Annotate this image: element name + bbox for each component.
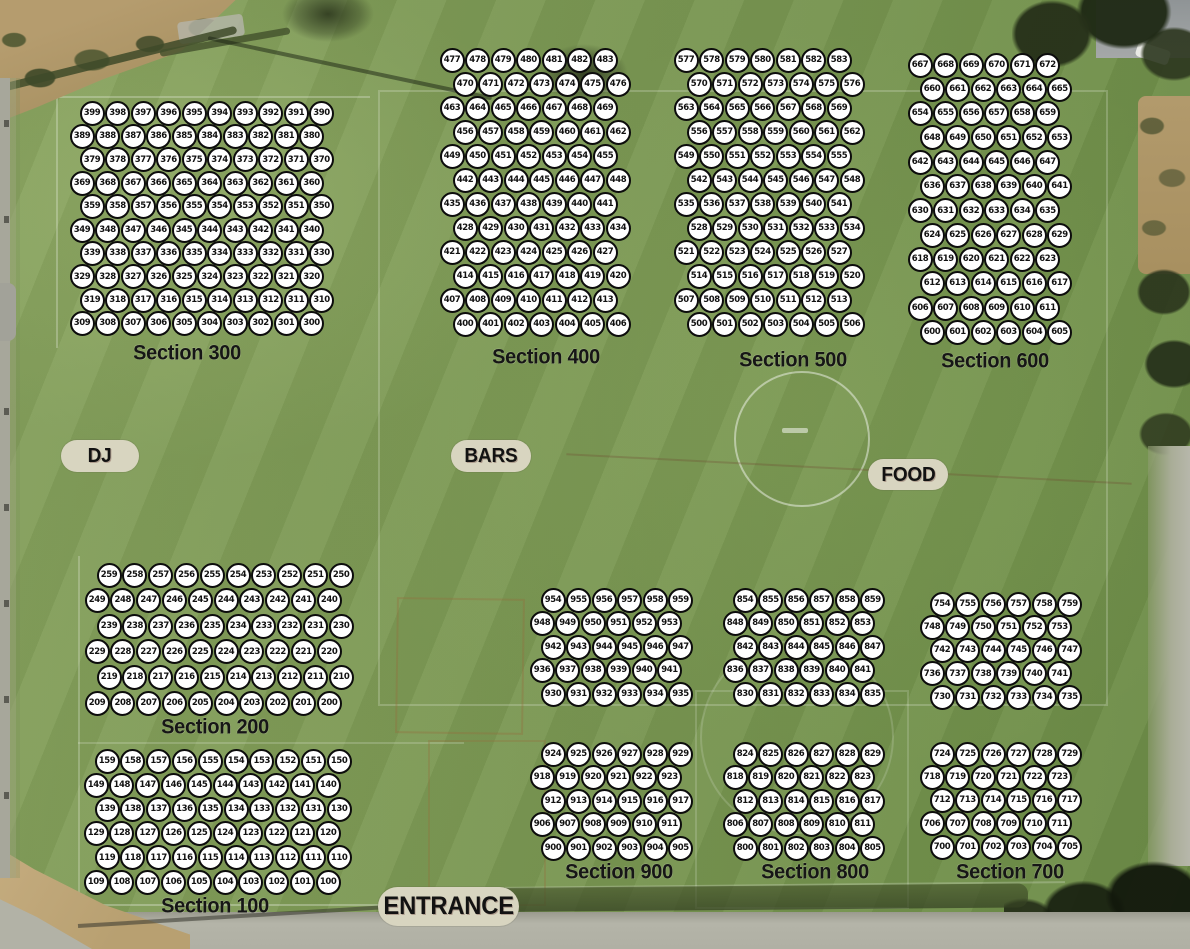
- seat-453[interactable]: 453: [542, 144, 567, 169]
- seat-922[interactable]: 922: [632, 765, 657, 790]
- seat-433[interactable]: 433: [580, 216, 605, 241]
- seat-671[interactable]: 671: [1010, 53, 1035, 78]
- seat-477[interactable]: 477: [440, 48, 465, 73]
- seat-611[interactable]: 611: [1035, 296, 1060, 321]
- seat-140[interactable]: 140: [316, 773, 341, 798]
- seat-481[interactable]: 481: [542, 48, 567, 73]
- seat-435[interactable]: 435: [440, 192, 465, 217]
- seat-529[interactable]: 529: [712, 216, 737, 241]
- seat-523[interactable]: 523: [725, 240, 750, 265]
- seat-541[interactable]: 541: [827, 192, 852, 217]
- seat-942[interactable]: 942: [541, 635, 566, 660]
- seat-480[interactable]: 480: [516, 48, 541, 73]
- seat-804[interactable]: 804: [835, 836, 860, 861]
- seat-734[interactable]: 734: [1032, 685, 1057, 710]
- seat-829[interactable]: 829: [860, 742, 885, 767]
- seat-905[interactable]: 905: [668, 836, 693, 861]
- seat-564[interactable]: 564: [699, 96, 724, 121]
- seat-252[interactable]: 252: [277, 563, 302, 588]
- seat-712[interactable]: 712: [930, 788, 955, 813]
- seat-527[interactable]: 527: [827, 240, 852, 265]
- seat-950[interactable]: 950: [581, 611, 606, 636]
- seat-415[interactable]: 415: [478, 264, 503, 289]
- seat-901[interactable]: 901: [566, 836, 591, 861]
- seat-550[interactable]: 550: [699, 144, 724, 169]
- seat-751[interactable]: 751: [996, 615, 1021, 640]
- seat-933[interactable]: 933: [617, 682, 642, 707]
- seat-904[interactable]: 904: [643, 836, 668, 861]
- seat-841[interactable]: 841: [850, 658, 875, 683]
- seat-516[interactable]: 516: [738, 264, 763, 289]
- seat-612[interactable]: 612: [920, 271, 945, 296]
- seat-620[interactable]: 620: [959, 247, 984, 272]
- seat-724[interactable]: 724: [930, 742, 955, 767]
- seat-819[interactable]: 819: [748, 765, 773, 790]
- seat-432[interactable]: 432: [555, 216, 580, 241]
- seat-420[interactable]: 420: [606, 264, 631, 289]
- seat-417[interactable]: 417: [529, 264, 554, 289]
- seat-514[interactable]: 514: [687, 264, 712, 289]
- seat-907[interactable]: 907: [555, 812, 580, 837]
- seat-859[interactable]: 859: [860, 588, 885, 613]
- seat-831[interactable]: 831: [758, 682, 783, 707]
- seat-395[interactable]: 395: [182, 101, 207, 126]
- seat-627[interactable]: 627: [996, 223, 1021, 248]
- seat-315[interactable]: 315: [182, 288, 207, 313]
- seat-471[interactable]: 471: [478, 72, 503, 97]
- seat-505[interactable]: 505: [814, 312, 839, 337]
- seat-467[interactable]: 467: [542, 96, 567, 121]
- seat-381[interactable]: 381: [274, 124, 299, 149]
- seat-124[interactable]: 124: [213, 821, 238, 846]
- seat-656[interactable]: 656: [959, 101, 984, 126]
- seat-746[interactable]: 746: [1032, 638, 1057, 663]
- seat-349[interactable]: 349: [70, 218, 95, 243]
- seat-566[interactable]: 566: [750, 96, 775, 121]
- seat-353[interactable]: 353: [233, 194, 258, 219]
- seat-404[interactable]: 404: [555, 312, 580, 337]
- seat-713[interactable]: 713: [955, 788, 980, 813]
- seat-307[interactable]: 307: [121, 311, 146, 336]
- seat-614[interactable]: 614: [971, 271, 996, 296]
- seat-537[interactable]: 537: [725, 192, 750, 217]
- seat-375[interactable]: 375: [182, 147, 207, 172]
- seat-706[interactable]: 706: [920, 811, 945, 836]
- seat-941[interactable]: 941: [657, 658, 682, 683]
- seat-528[interactable]: 528: [687, 216, 712, 241]
- seat-849[interactable]: 849: [748, 611, 773, 636]
- seat-250[interactable]: 250: [329, 563, 354, 588]
- seat-551[interactable]: 551: [725, 144, 750, 169]
- seat-319[interactable]: 319: [80, 288, 105, 313]
- seat-465[interactable]: 465: [491, 96, 516, 121]
- seat-630[interactable]: 630: [908, 198, 933, 223]
- seat-224[interactable]: 224: [214, 639, 239, 664]
- seat-509[interactable]: 509: [725, 288, 750, 313]
- seat-239[interactable]: 239: [97, 614, 122, 639]
- seat-431[interactable]: 431: [529, 216, 554, 241]
- seat-390[interactable]: 390: [309, 101, 334, 126]
- seat-308[interactable]: 308: [95, 311, 120, 336]
- seat-570[interactable]: 570: [687, 72, 712, 97]
- seat-830[interactable]: 830: [733, 682, 758, 707]
- seat-333[interactable]: 333: [233, 241, 258, 266]
- seat-153[interactable]: 153: [249, 749, 274, 774]
- seat-368[interactable]: 368: [95, 171, 120, 196]
- seat-542[interactable]: 542: [687, 168, 712, 193]
- seat-909[interactable]: 909: [606, 812, 631, 837]
- seat-421[interactable]: 421: [440, 240, 465, 265]
- seat-702[interactable]: 702: [981, 835, 1006, 860]
- seat-344[interactable]: 344: [197, 218, 222, 243]
- seat-441[interactable]: 441: [593, 192, 618, 217]
- seat-913[interactable]: 913: [566, 789, 591, 814]
- seat-383[interactable]: 383: [223, 124, 248, 149]
- seat-552[interactable]: 552: [750, 144, 775, 169]
- seat-948[interactable]: 948: [530, 611, 555, 636]
- seat-847[interactable]: 847: [860, 635, 885, 660]
- seat-920[interactable]: 920: [581, 765, 606, 790]
- seat-233[interactable]: 233: [251, 614, 276, 639]
- seat-958[interactable]: 958: [643, 588, 668, 613]
- seat-504[interactable]: 504: [789, 312, 814, 337]
- seat-139[interactable]: 139: [95, 797, 120, 822]
- seat-410[interactable]: 410: [516, 288, 541, 313]
- seat-357[interactable]: 357: [131, 194, 156, 219]
- seat-908[interactable]: 908: [581, 812, 606, 837]
- seat-201[interactable]: 201: [291, 691, 316, 716]
- seat-207[interactable]: 207: [136, 691, 161, 716]
- seat-582[interactable]: 582: [801, 48, 826, 73]
- seat-735[interactable]: 735: [1057, 685, 1082, 710]
- seat-389[interactable]: 389: [70, 124, 95, 149]
- seat-513[interactable]: 513: [827, 288, 852, 313]
- seat-641[interactable]: 641: [1047, 174, 1072, 199]
- seat-952[interactable]: 952: [632, 611, 657, 636]
- seat-251[interactable]: 251: [303, 563, 328, 588]
- seat-257[interactable]: 257: [148, 563, 173, 588]
- seat-474[interactable]: 474: [555, 72, 580, 97]
- seat-475[interactable]: 475: [580, 72, 605, 97]
- seat-426[interactable]: 426: [567, 240, 592, 265]
- seat-512[interactable]: 512: [801, 288, 826, 313]
- seat-927[interactable]: 927: [617, 742, 642, 767]
- seat-743[interactable]: 743: [955, 638, 980, 663]
- seat-159[interactable]: 159: [95, 749, 120, 774]
- seat-456[interactable]: 456: [453, 120, 478, 145]
- seat-647[interactable]: 647: [1035, 150, 1060, 175]
- seat-916[interactable]: 916: [643, 789, 668, 814]
- seat-331[interactable]: 331: [284, 241, 309, 266]
- seat-400[interactable]: 400: [453, 312, 478, 337]
- seat-732[interactable]: 732: [981, 685, 1006, 710]
- seat-807[interactable]: 807: [748, 812, 773, 837]
- seat-547[interactable]: 547: [814, 168, 839, 193]
- seat-462[interactable]: 462: [606, 120, 631, 145]
- seat-206[interactable]: 206: [162, 691, 187, 716]
- seat-946[interactable]: 946: [643, 635, 668, 660]
- seat-110[interactable]: 110: [327, 845, 352, 870]
- seat-548[interactable]: 548: [840, 168, 865, 193]
- seat-956[interactable]: 956: [592, 588, 617, 613]
- seat-253[interactable]: 253: [251, 563, 276, 588]
- seat-934[interactable]: 934: [643, 682, 668, 707]
- seat-125[interactable]: 125: [187, 821, 212, 846]
- seat-466[interactable]: 466: [516, 96, 541, 121]
- seat-371[interactable]: 371: [284, 147, 309, 172]
- seat-575[interactable]: 575: [814, 72, 839, 97]
- seat-852[interactable]: 852: [825, 611, 850, 636]
- seat-704[interactable]: 704: [1032, 835, 1057, 860]
- seat-809[interactable]: 809: [799, 812, 824, 837]
- seat-725[interactable]: 725: [955, 742, 980, 767]
- seat-531[interactable]: 531: [763, 216, 788, 241]
- seat-145[interactable]: 145: [187, 773, 212, 798]
- seat-447[interactable]: 447: [580, 168, 605, 193]
- seat-216[interactable]: 216: [174, 665, 199, 690]
- seat-256[interactable]: 256: [174, 563, 199, 588]
- seat-229[interactable]: 229: [85, 639, 110, 664]
- seat-754[interactable]: 754: [930, 592, 955, 617]
- seat-468[interactable]: 468: [567, 96, 592, 121]
- seat-245[interactable]: 245: [188, 588, 213, 613]
- seat-559[interactable]: 559: [763, 120, 788, 145]
- seat-525[interactable]: 525: [776, 240, 801, 265]
- seat-230[interactable]: 230: [329, 614, 354, 639]
- seat-640[interactable]: 640: [1022, 174, 1047, 199]
- seat-142[interactable]: 142: [264, 773, 289, 798]
- seat-726[interactable]: 726: [981, 742, 1006, 767]
- seat-313[interactable]: 313: [233, 288, 258, 313]
- seat-603[interactable]: 603: [996, 320, 1021, 345]
- seat-339[interactable]: 339: [80, 241, 105, 266]
- seat-136[interactable]: 136: [172, 797, 197, 822]
- seat-822[interactable]: 822: [825, 765, 850, 790]
- seat-925[interactable]: 925: [566, 742, 591, 767]
- seat-209[interactable]: 209: [85, 691, 110, 716]
- seat-600[interactable]: 600: [920, 320, 945, 345]
- seat-354[interactable]: 354: [207, 194, 232, 219]
- seat-419[interactable]: 419: [580, 264, 605, 289]
- seat-362[interactable]: 362: [248, 171, 273, 196]
- seat-317[interactable]: 317: [131, 288, 156, 313]
- seat-533[interactable]: 533: [814, 216, 839, 241]
- seat-202[interactable]: 202: [265, 691, 290, 716]
- seat-939[interactable]: 939: [606, 658, 631, 683]
- seat-657[interactable]: 657: [984, 101, 1009, 126]
- seat-716[interactable]: 716: [1032, 788, 1057, 813]
- seat-452[interactable]: 452: [516, 144, 541, 169]
- seat-338[interactable]: 338: [105, 241, 130, 266]
- seat-412[interactable]: 412: [567, 288, 592, 313]
- seat-753[interactable]: 753: [1047, 615, 1072, 640]
- seat-220[interactable]: 220: [317, 639, 342, 664]
- seat-642[interactable]: 642: [908, 150, 933, 175]
- seat-391[interactable]: 391: [284, 101, 309, 126]
- seat-469[interactable]: 469: [593, 96, 618, 121]
- seat-258[interactable]: 258: [122, 563, 147, 588]
- seat-478[interactable]: 478: [465, 48, 490, 73]
- seat-115[interactable]: 115: [198, 845, 223, 870]
- seat-840[interactable]: 840: [825, 658, 850, 683]
- seat-358[interactable]: 358: [105, 194, 130, 219]
- seat-254[interactable]: 254: [226, 563, 251, 588]
- seat-808[interactable]: 808: [774, 812, 799, 837]
- seat-581[interactable]: 581: [776, 48, 801, 73]
- seat-940[interactable]: 940: [632, 658, 657, 683]
- seat-568[interactable]: 568: [801, 96, 826, 121]
- seat-669[interactable]: 669: [959, 53, 984, 78]
- seat-549[interactable]: 549: [674, 144, 699, 169]
- seat-429[interactable]: 429: [478, 216, 503, 241]
- seat-414[interactable]: 414: [453, 264, 478, 289]
- seat-377[interactable]: 377: [131, 147, 156, 172]
- seat-214[interactable]: 214: [226, 665, 251, 690]
- seat-397[interactable]: 397: [131, 101, 156, 126]
- seat-102[interactable]: 102: [264, 870, 289, 895]
- seat-406[interactable]: 406: [606, 312, 631, 337]
- seat-482[interactable]: 482: [567, 48, 592, 73]
- seat-137[interactable]: 137: [146, 797, 171, 822]
- seat-921[interactable]: 921: [606, 765, 631, 790]
- seat-204[interactable]: 204: [214, 691, 239, 716]
- seat-747[interactable]: 747: [1057, 638, 1082, 663]
- seat-526[interactable]: 526: [801, 240, 826, 265]
- seat-443[interactable]: 443: [478, 168, 503, 193]
- seat-577[interactable]: 577: [674, 48, 699, 73]
- seat-321[interactable]: 321: [274, 264, 299, 289]
- seat-520[interactable]: 520: [840, 264, 865, 289]
- seat-107[interactable]: 107: [135, 870, 160, 895]
- seat-384[interactable]: 384: [197, 124, 222, 149]
- seat-442[interactable]: 442: [453, 168, 478, 193]
- seat-919[interactable]: 919: [555, 765, 580, 790]
- seat-314[interactable]: 314: [207, 288, 232, 313]
- seat-311[interactable]: 311: [284, 288, 309, 313]
- seat-398[interactable]: 398: [105, 101, 130, 126]
- seat-824[interactable]: 824: [733, 742, 758, 767]
- seat-312[interactable]: 312: [258, 288, 283, 313]
- seat-721[interactable]: 721: [996, 765, 1021, 790]
- seat-439[interactable]: 439: [542, 192, 567, 217]
- seat-149[interactable]: 149: [84, 773, 109, 798]
- seat-648[interactable]: 648: [920, 125, 945, 150]
- seat-434[interactable]: 434: [606, 216, 631, 241]
- seat-660[interactable]: 660: [920, 77, 945, 102]
- seat-583[interactable]: 583: [827, 48, 852, 73]
- seat-825[interactable]: 825: [758, 742, 783, 767]
- seat-449[interactable]: 449: [440, 144, 465, 169]
- seat-131[interactable]: 131: [301, 797, 326, 822]
- seat-720[interactable]: 720: [971, 765, 996, 790]
- seat-143[interactable]: 143: [238, 773, 263, 798]
- seat-801[interactable]: 801: [758, 836, 783, 861]
- seat-857[interactable]: 857: [809, 588, 834, 613]
- seat-555[interactable]: 555: [827, 144, 852, 169]
- seat-646[interactable]: 646: [1010, 150, 1035, 175]
- seat-367[interactable]: 367: [121, 171, 146, 196]
- seat-902[interactable]: 902: [592, 836, 617, 861]
- seat-240[interactable]: 240: [317, 588, 342, 613]
- seat-155[interactable]: 155: [198, 749, 223, 774]
- seat-723[interactable]: 723: [1047, 765, 1072, 790]
- seat-330[interactable]: 330: [309, 241, 334, 266]
- seat-148[interactable]: 148: [109, 773, 134, 798]
- seat-517[interactable]: 517: [763, 264, 788, 289]
- seat-924[interactable]: 924: [541, 742, 566, 767]
- seat-576[interactable]: 576: [840, 72, 865, 97]
- seat-812[interactable]: 812: [733, 789, 758, 814]
- seat-351[interactable]: 351: [284, 194, 309, 219]
- seat-936[interactable]: 936: [530, 658, 555, 683]
- seat-855[interactable]: 855: [758, 588, 783, 613]
- seat-574[interactable]: 574: [789, 72, 814, 97]
- seat-151[interactable]: 151: [301, 749, 326, 774]
- seat-710[interactable]: 710: [1022, 811, 1047, 836]
- seat-135[interactable]: 135: [198, 797, 223, 822]
- seat-938[interactable]: 938: [581, 658, 606, 683]
- seat-803[interactable]: 803: [809, 836, 834, 861]
- seat-337[interactable]: 337: [131, 241, 156, 266]
- seat-309[interactable]: 309: [70, 311, 95, 336]
- seat-601[interactable]: 601: [945, 320, 970, 345]
- seat-659[interactable]: 659: [1035, 101, 1060, 126]
- seat-301[interactable]: 301: [274, 311, 299, 336]
- seat-806[interactable]: 806: [723, 812, 748, 837]
- seat-800[interactable]: 800: [733, 836, 758, 861]
- seat-146[interactable]: 146: [161, 773, 186, 798]
- seat-401[interactable]: 401: [478, 312, 503, 337]
- seat-843[interactable]: 843: [758, 635, 783, 660]
- seat-405[interactable]: 405: [580, 312, 605, 337]
- seat-604[interactable]: 604: [1022, 320, 1047, 345]
- seat-232[interactable]: 232: [277, 614, 302, 639]
- seat-418[interactable]: 418: [555, 264, 580, 289]
- seat-343[interactable]: 343: [223, 218, 248, 243]
- seat-154[interactable]: 154: [224, 749, 249, 774]
- seat-392[interactable]: 392: [258, 101, 283, 126]
- seat-327[interactable]: 327: [121, 264, 146, 289]
- seat-740[interactable]: 740: [1022, 661, 1047, 686]
- seat-954[interactable]: 954: [541, 588, 566, 613]
- seat-563[interactable]: 563: [674, 96, 699, 121]
- seat-211[interactable]: 211: [303, 665, 328, 690]
- seat-141[interactable]: 141: [290, 773, 315, 798]
- seat-665[interactable]: 665: [1047, 77, 1072, 102]
- seat-833[interactable]: 833: [809, 682, 834, 707]
- seat-302[interactable]: 302: [248, 311, 273, 336]
- seat-329[interactable]: 329: [70, 264, 95, 289]
- seat-722[interactable]: 722: [1022, 765, 1047, 790]
- seat-731[interactable]: 731: [955, 685, 980, 710]
- seat-937[interactable]: 937: [555, 658, 580, 683]
- seat-501[interactable]: 501: [712, 312, 737, 337]
- seat-450[interactable]: 450: [465, 144, 490, 169]
- seat-238[interactable]: 238: [122, 614, 147, 639]
- seat-661[interactable]: 661: [945, 77, 970, 102]
- seat-219[interactable]: 219: [97, 665, 122, 690]
- seat-744[interactable]: 744: [981, 638, 1006, 663]
- seat-511[interactable]: 511: [776, 288, 801, 313]
- seat-105[interactable]: 105: [187, 870, 212, 895]
- seat-544[interactable]: 544: [738, 168, 763, 193]
- seat-652[interactable]: 652: [1022, 125, 1047, 150]
- seat-303[interactable]: 303: [223, 311, 248, 336]
- seat-727[interactable]: 727: [1006, 742, 1031, 767]
- seat-473[interactable]: 473: [529, 72, 554, 97]
- seat-959[interactable]: 959: [668, 588, 693, 613]
- seat-621[interactable]: 621: [984, 247, 1009, 272]
